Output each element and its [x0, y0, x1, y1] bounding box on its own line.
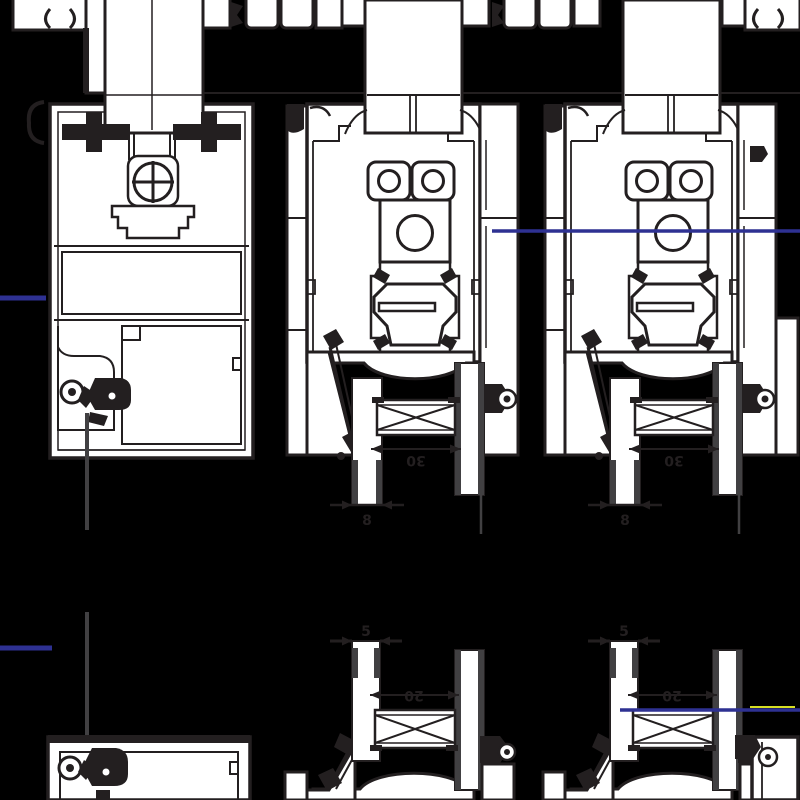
bottom-left-fixed-frame-section: [48, 735, 250, 800]
infill-panel-edge: [105, 0, 203, 133]
drawing-canvas: 30 8: [0, 0, 800, 800]
profile-cross-section-drawing: 30 8: [0, 0, 800, 800]
screw-boss: [128, 156, 178, 206]
